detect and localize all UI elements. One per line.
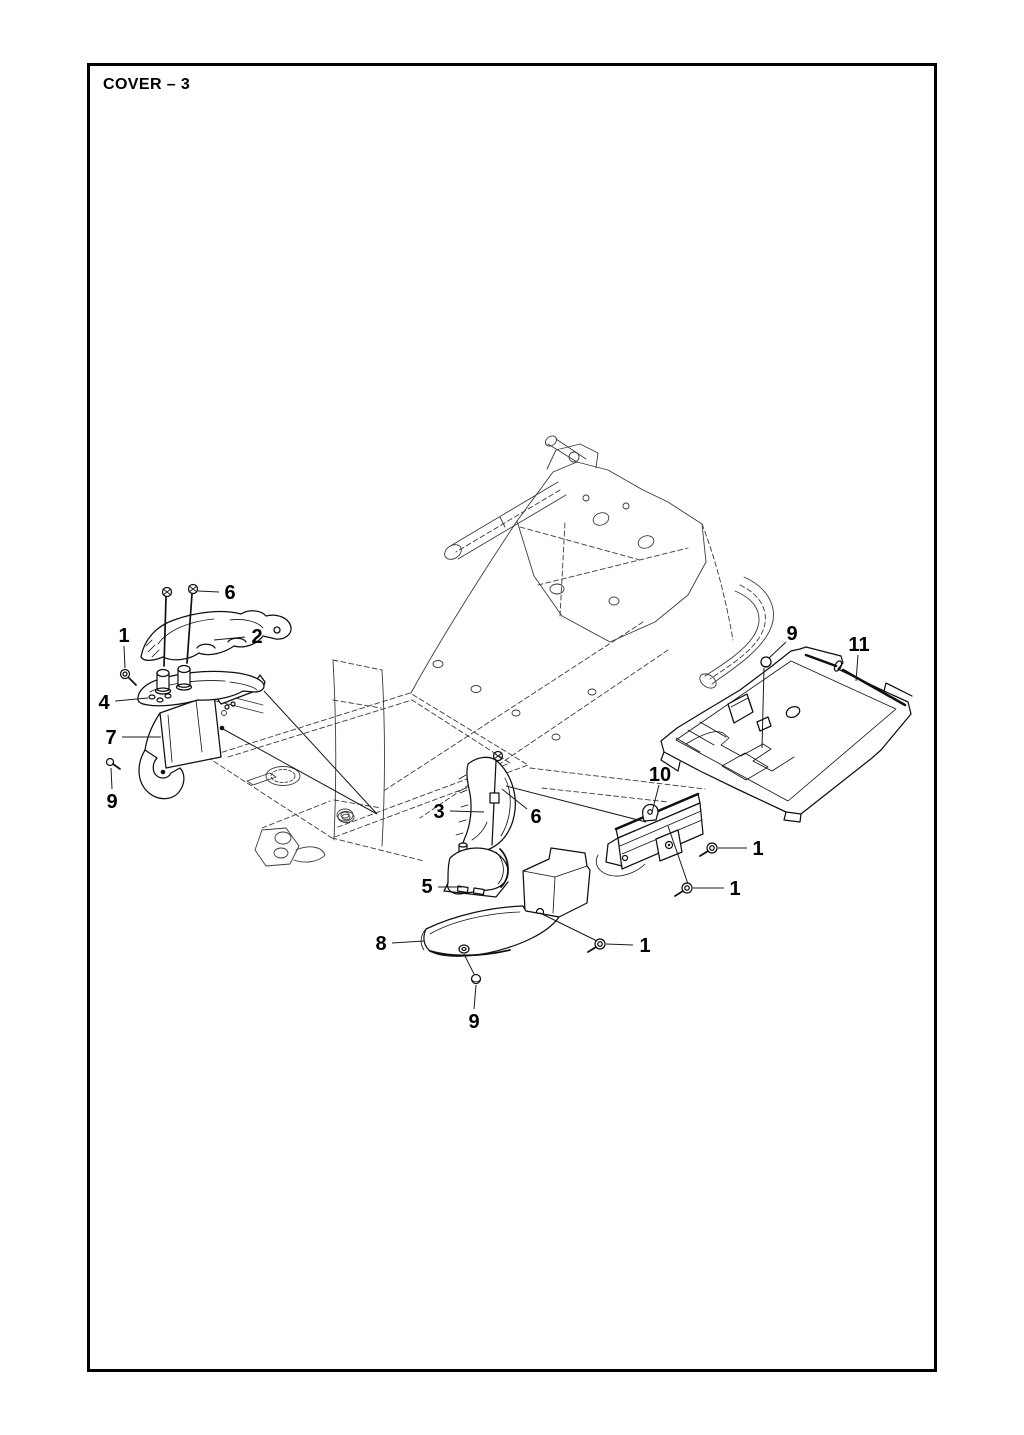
leader-line xyxy=(111,768,112,789)
callout-1: 1 xyxy=(639,935,650,957)
part-1-screw-right-upper xyxy=(700,843,717,856)
leader-line xyxy=(474,985,476,1009)
leader-line xyxy=(464,954,474,974)
callout-5: 5 xyxy=(421,876,432,898)
leader-line xyxy=(769,642,786,658)
manual-page: COVER – 3 xyxy=(0,0,1024,1435)
part-5-lower-bracket xyxy=(444,843,508,897)
part-9-fastener-left xyxy=(107,759,121,770)
leader-line xyxy=(198,591,219,592)
callout-7: 7 xyxy=(105,727,116,749)
part-9-plug-bottom xyxy=(472,975,481,984)
callout-8: 8 xyxy=(375,933,386,955)
callout-1: 1 xyxy=(729,878,740,900)
callout-1: 1 xyxy=(118,625,129,647)
callout-9: 9 xyxy=(786,623,797,645)
leader-line xyxy=(223,729,377,814)
callout-11: 11 xyxy=(848,634,869,656)
callout-2: 2 xyxy=(251,626,262,648)
leader-line xyxy=(124,646,125,668)
callout-1: 1 xyxy=(752,838,763,860)
part-9-plug-right xyxy=(761,657,771,667)
callout-3: 3 xyxy=(433,801,444,823)
leader-line xyxy=(264,691,377,814)
callout-10: 10 xyxy=(649,764,671,786)
callout-6: 6 xyxy=(224,582,235,604)
part-1-screw-left xyxy=(121,670,137,686)
part-4-mount-bracket xyxy=(138,666,264,706)
leader-line xyxy=(606,944,633,945)
exploded-view-drawing: 6124793658199111011 xyxy=(0,0,1024,1435)
part-1-screw-right-lower xyxy=(675,883,692,896)
callout-9: 9 xyxy=(106,791,117,813)
callout-4: 4 xyxy=(98,692,110,714)
callout-9: 9 xyxy=(468,1011,479,1033)
leader-line xyxy=(392,941,424,943)
part-2-top-cover xyxy=(141,611,291,661)
part-10-side-cover xyxy=(596,794,703,876)
callout-6: 6 xyxy=(530,806,541,828)
part-3-deflector xyxy=(456,757,515,854)
